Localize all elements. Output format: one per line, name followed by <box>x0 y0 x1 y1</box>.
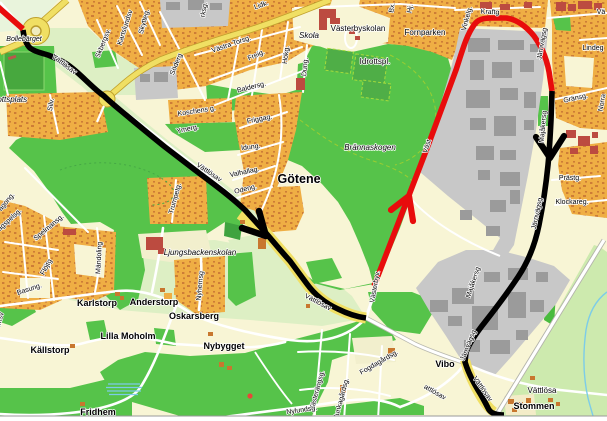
svg-text:Götene: Götene <box>277 172 320 186</box>
svg-text:Vibo: Vibo <box>435 359 455 369</box>
svg-text:Ljungsbackenskolan: Ljungsbackenskolan <box>164 248 237 257</box>
svg-text:Brännaskogen: Brännaskogen <box>344 143 396 152</box>
svg-text:Bollebärget: Bollebärget <box>6 36 42 43</box>
svg-text:Hj.: Hj. <box>406 4 414 14</box>
svg-text:Lindeg: Lindeg <box>582 45 603 52</box>
svg-text:Skola: Skola <box>299 31 320 40</box>
svg-text:Idrottsplats: Idrottsplats <box>0 95 27 104</box>
svg-text:Oskarsberg: Oskarsberg <box>169 311 219 321</box>
svg-text:Karlstorp: Karlstorp <box>77 298 118 308</box>
svg-text:Nybygget: Nybygget <box>203 341 244 351</box>
svg-text:Klockareg.: Klockareg. <box>555 199 588 206</box>
svg-text:Lilla Moholm: Lilla Moholm <box>101 331 156 341</box>
svg-text:Prästg.: Prästg. <box>559 175 581 182</box>
svg-text:Källstorp: Källstorp <box>30 345 70 355</box>
svg-text:Anderstorp: Anderstorp <box>130 297 179 307</box>
svg-text:Idrottspl.: Idrottspl. <box>360 57 391 66</box>
svg-text:Västerbyskolan: Västerbyskolan <box>331 24 386 33</box>
svg-text:Vättlösa: Vättlösa <box>528 386 557 395</box>
svg-text:Kraftg: Kraftg <box>481 9 500 17</box>
svg-text:Stommen: Stommen <box>513 401 554 411</box>
svg-text:Fornparken: Fornparken <box>405 28 446 37</box>
svg-text:Vä: Vä <box>597 9 606 16</box>
